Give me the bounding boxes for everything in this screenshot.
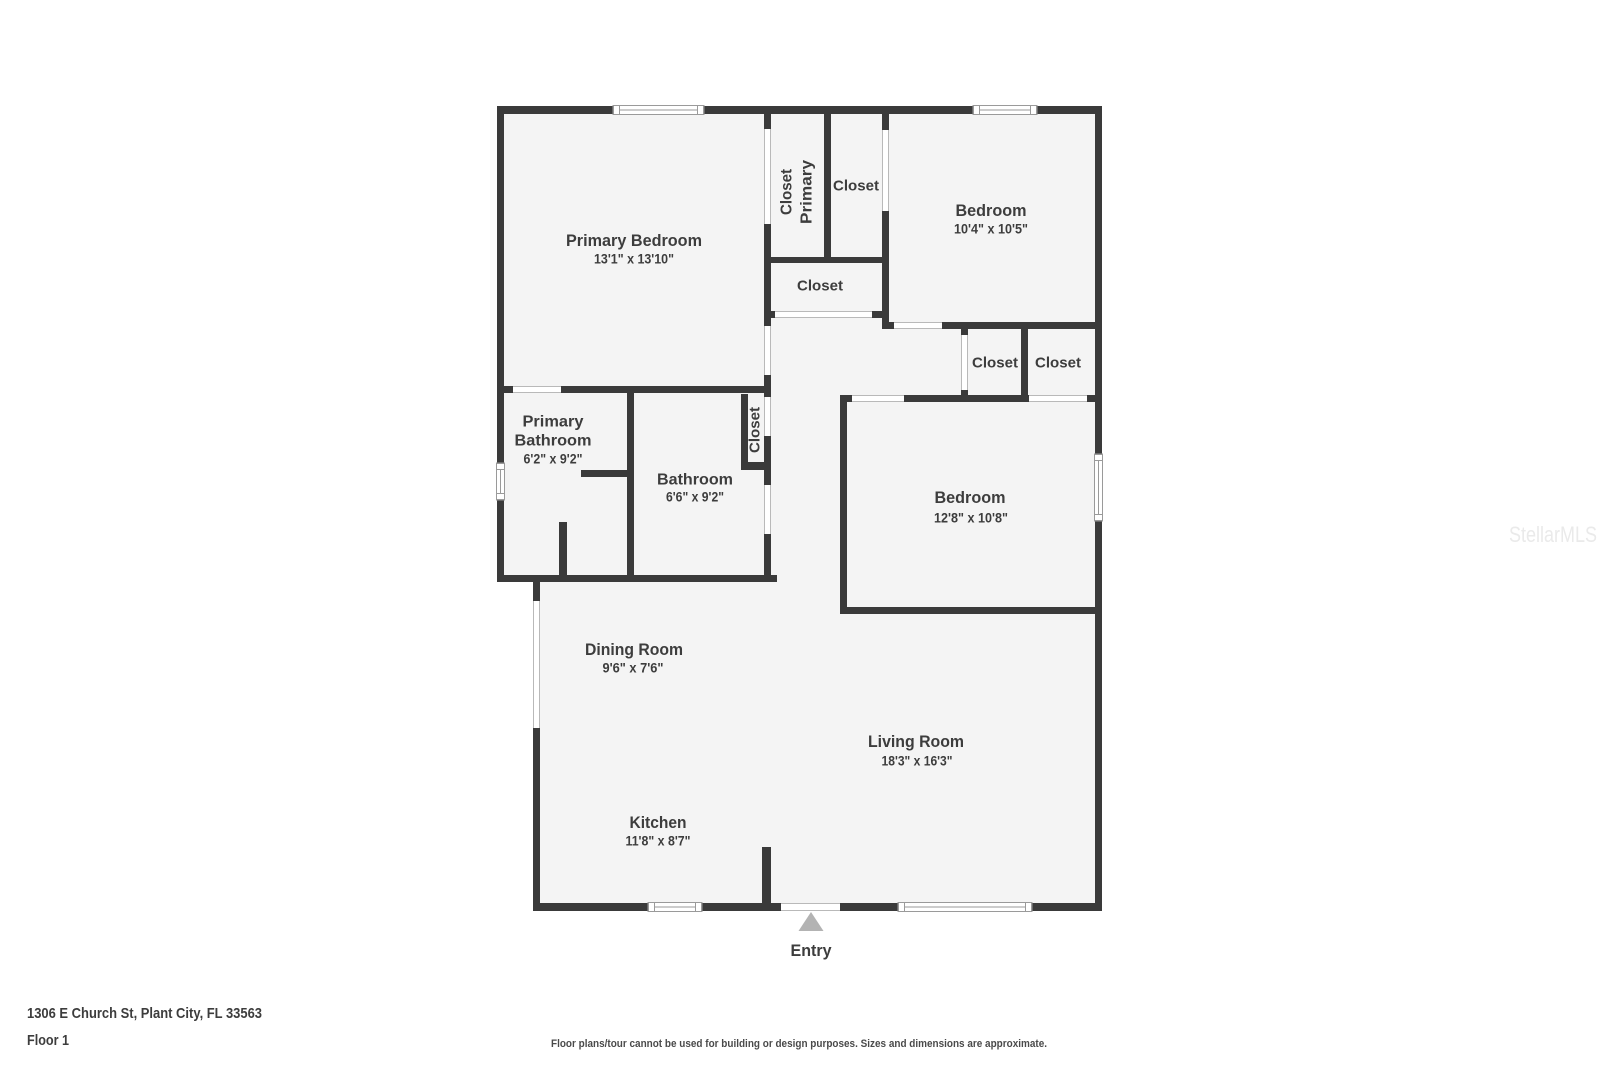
svg-text:Bedroom: Bedroom (935, 489, 1006, 507)
svg-text:10'4" x 10'5": 10'4" x 10'5" (954, 222, 1028, 237)
svg-text:Bathroom: Bathroom (657, 472, 733, 489)
svg-text:11'8" x 8'7": 11'8" x 8'7" (626, 834, 691, 849)
svg-text:Closet: Closet (747, 407, 764, 453)
svg-text:Bedroom: Bedroom (956, 202, 1027, 220)
svg-text:Floor 1: Floor 1 (27, 1032, 69, 1049)
svg-text:Living Room: Living Room (868, 733, 964, 751)
svg-text:Dining Room: Dining Room (585, 641, 683, 659)
svg-text:Primary: Primary (799, 160, 816, 224)
svg-text:Closet: Closet (972, 355, 1018, 372)
svg-text:Entry: Entry (791, 942, 833, 960)
svg-text:Bathroom: Bathroom (515, 433, 592, 450)
svg-text:StellarMLS: StellarMLS (1509, 522, 1597, 547)
svg-text:Closet: Closet (1035, 355, 1081, 372)
svg-text:Closet: Closet (779, 168, 796, 215)
svg-text:Primary: Primary (523, 414, 584, 431)
svg-text:Closet: Closet (833, 178, 879, 195)
svg-text:Primary Bedroom: Primary Bedroom (566, 232, 702, 250)
svg-text:6'6" x 9'2": 6'6" x 9'2" (666, 490, 724, 505)
svg-text:Kitchen: Kitchen (630, 814, 687, 832)
svg-text:18'3" x 16'3": 18'3" x 16'3" (882, 754, 953, 769)
svg-text:12'8" x 10'8": 12'8" x 10'8" (934, 511, 1008, 526)
svg-text:Floor plans/tour cannot be use: Floor plans/tour cannot be used for buil… (551, 1038, 1047, 1050)
svg-text:6'2" x 9'2": 6'2" x 9'2" (524, 452, 583, 467)
svg-text:1306 E Church St, Plant City,: 1306 E Church St, Plant City, FL 33563 (27, 1005, 262, 1022)
svg-text:9'6" x 7'6": 9'6" x 7'6" (603, 661, 664, 676)
svg-text:Closet: Closet (797, 278, 843, 295)
svg-text:13'1" x 13'10": 13'1" x 13'10" (594, 252, 674, 267)
